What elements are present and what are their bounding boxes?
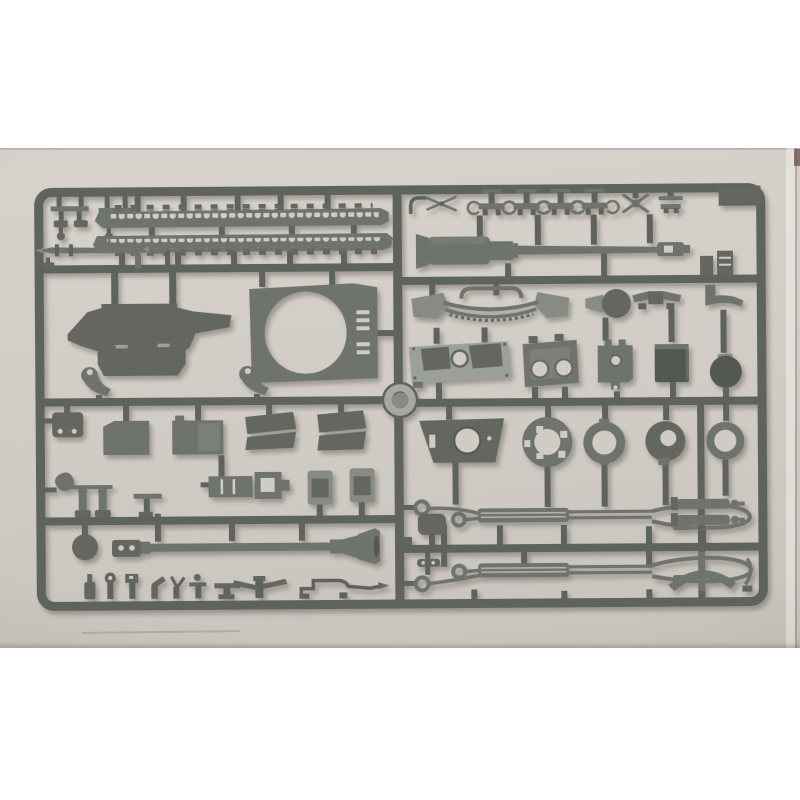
wing-bracket [632, 291, 681, 309]
small-block [403, 537, 412, 545]
stowage-box-small [52, 412, 83, 437]
photo-right-edge [786, 148, 795, 648]
mount-bracket [134, 494, 162, 517]
engine-grille-plate [409, 341, 511, 388]
fittings-row-wheel-post [105, 572, 116, 599]
shovel-with-posts [55, 472, 113, 517]
mudguard-pair-a [245, 412, 296, 450]
elbow-pipe [411, 198, 427, 214]
fittings-row-fork [171, 577, 184, 599]
turret-base-trapezoid-plate [419, 418, 504, 463]
wheel-ring-small [706, 422, 744, 460]
upper-hull-panel [67, 303, 231, 376]
injection-gate-disc [383, 383, 417, 417]
track-run-upper [95, 203, 389, 228]
end-bracket [659, 190, 683, 213]
corner-block [719, 185, 761, 205]
fittings-row [84, 571, 389, 601]
dark-stowage-box [655, 344, 689, 382]
tow-box-b [717, 251, 733, 276]
hull-roof-plate-with-turret-ring-opening [245, 283, 378, 383]
gun-barrel-lower-with-muzzle-brake [112, 528, 380, 566]
cable-pad-post [429, 535, 435, 545]
cross-clamp [623, 190, 649, 212]
page-background: { "scene": { "type": "photograph", "subj… [0, 0, 800, 800]
disc-cap-with-spike [585, 289, 631, 318]
boot-bracket [705, 285, 743, 307]
cable-clasp [417, 553, 440, 575]
ball-mount [710, 354, 742, 388]
wheel-ring-medium [583, 418, 625, 464]
hatch-plate-twin-holes [523, 334, 579, 387]
fittings-row-cap-post [125, 574, 138, 599]
corner-bracket-cluster-a [51, 196, 89, 240]
photo-corner-mark [794, 149, 800, 166]
wheel-ring-large [522, 417, 572, 467]
crenellated-mount-plate [598, 339, 633, 389]
scissors-linkage [427, 197, 457, 211]
road-wheel-disc [72, 534, 98, 560]
sprue-photo [0, 148, 800, 648]
stowage-box-a [103, 421, 149, 455]
photo-right-edge-line [795, 148, 797, 648]
cable-pad [418, 514, 446, 535]
fittings-row-long-rod [299, 580, 389, 599]
stowage-box-b [172, 415, 223, 454]
tow-box-a [700, 256, 713, 276]
vision-port-b [349, 468, 374, 502]
fittings-row-tee-disc [189, 574, 206, 599]
sprue-drawing [0, 148, 800, 648]
fittings-row-lever [151, 576, 166, 599]
fittings-row-bottle [84, 574, 95, 599]
wheel-hub-offset [645, 421, 685, 465]
fittings-row-winged-axle [232, 576, 287, 598]
gun-cradle-coupling [201, 472, 290, 500]
photo-bottom-edge [0, 642, 800, 648]
vision-port-a [308, 470, 333, 504]
mudguard-pair-b [317, 410, 366, 450]
